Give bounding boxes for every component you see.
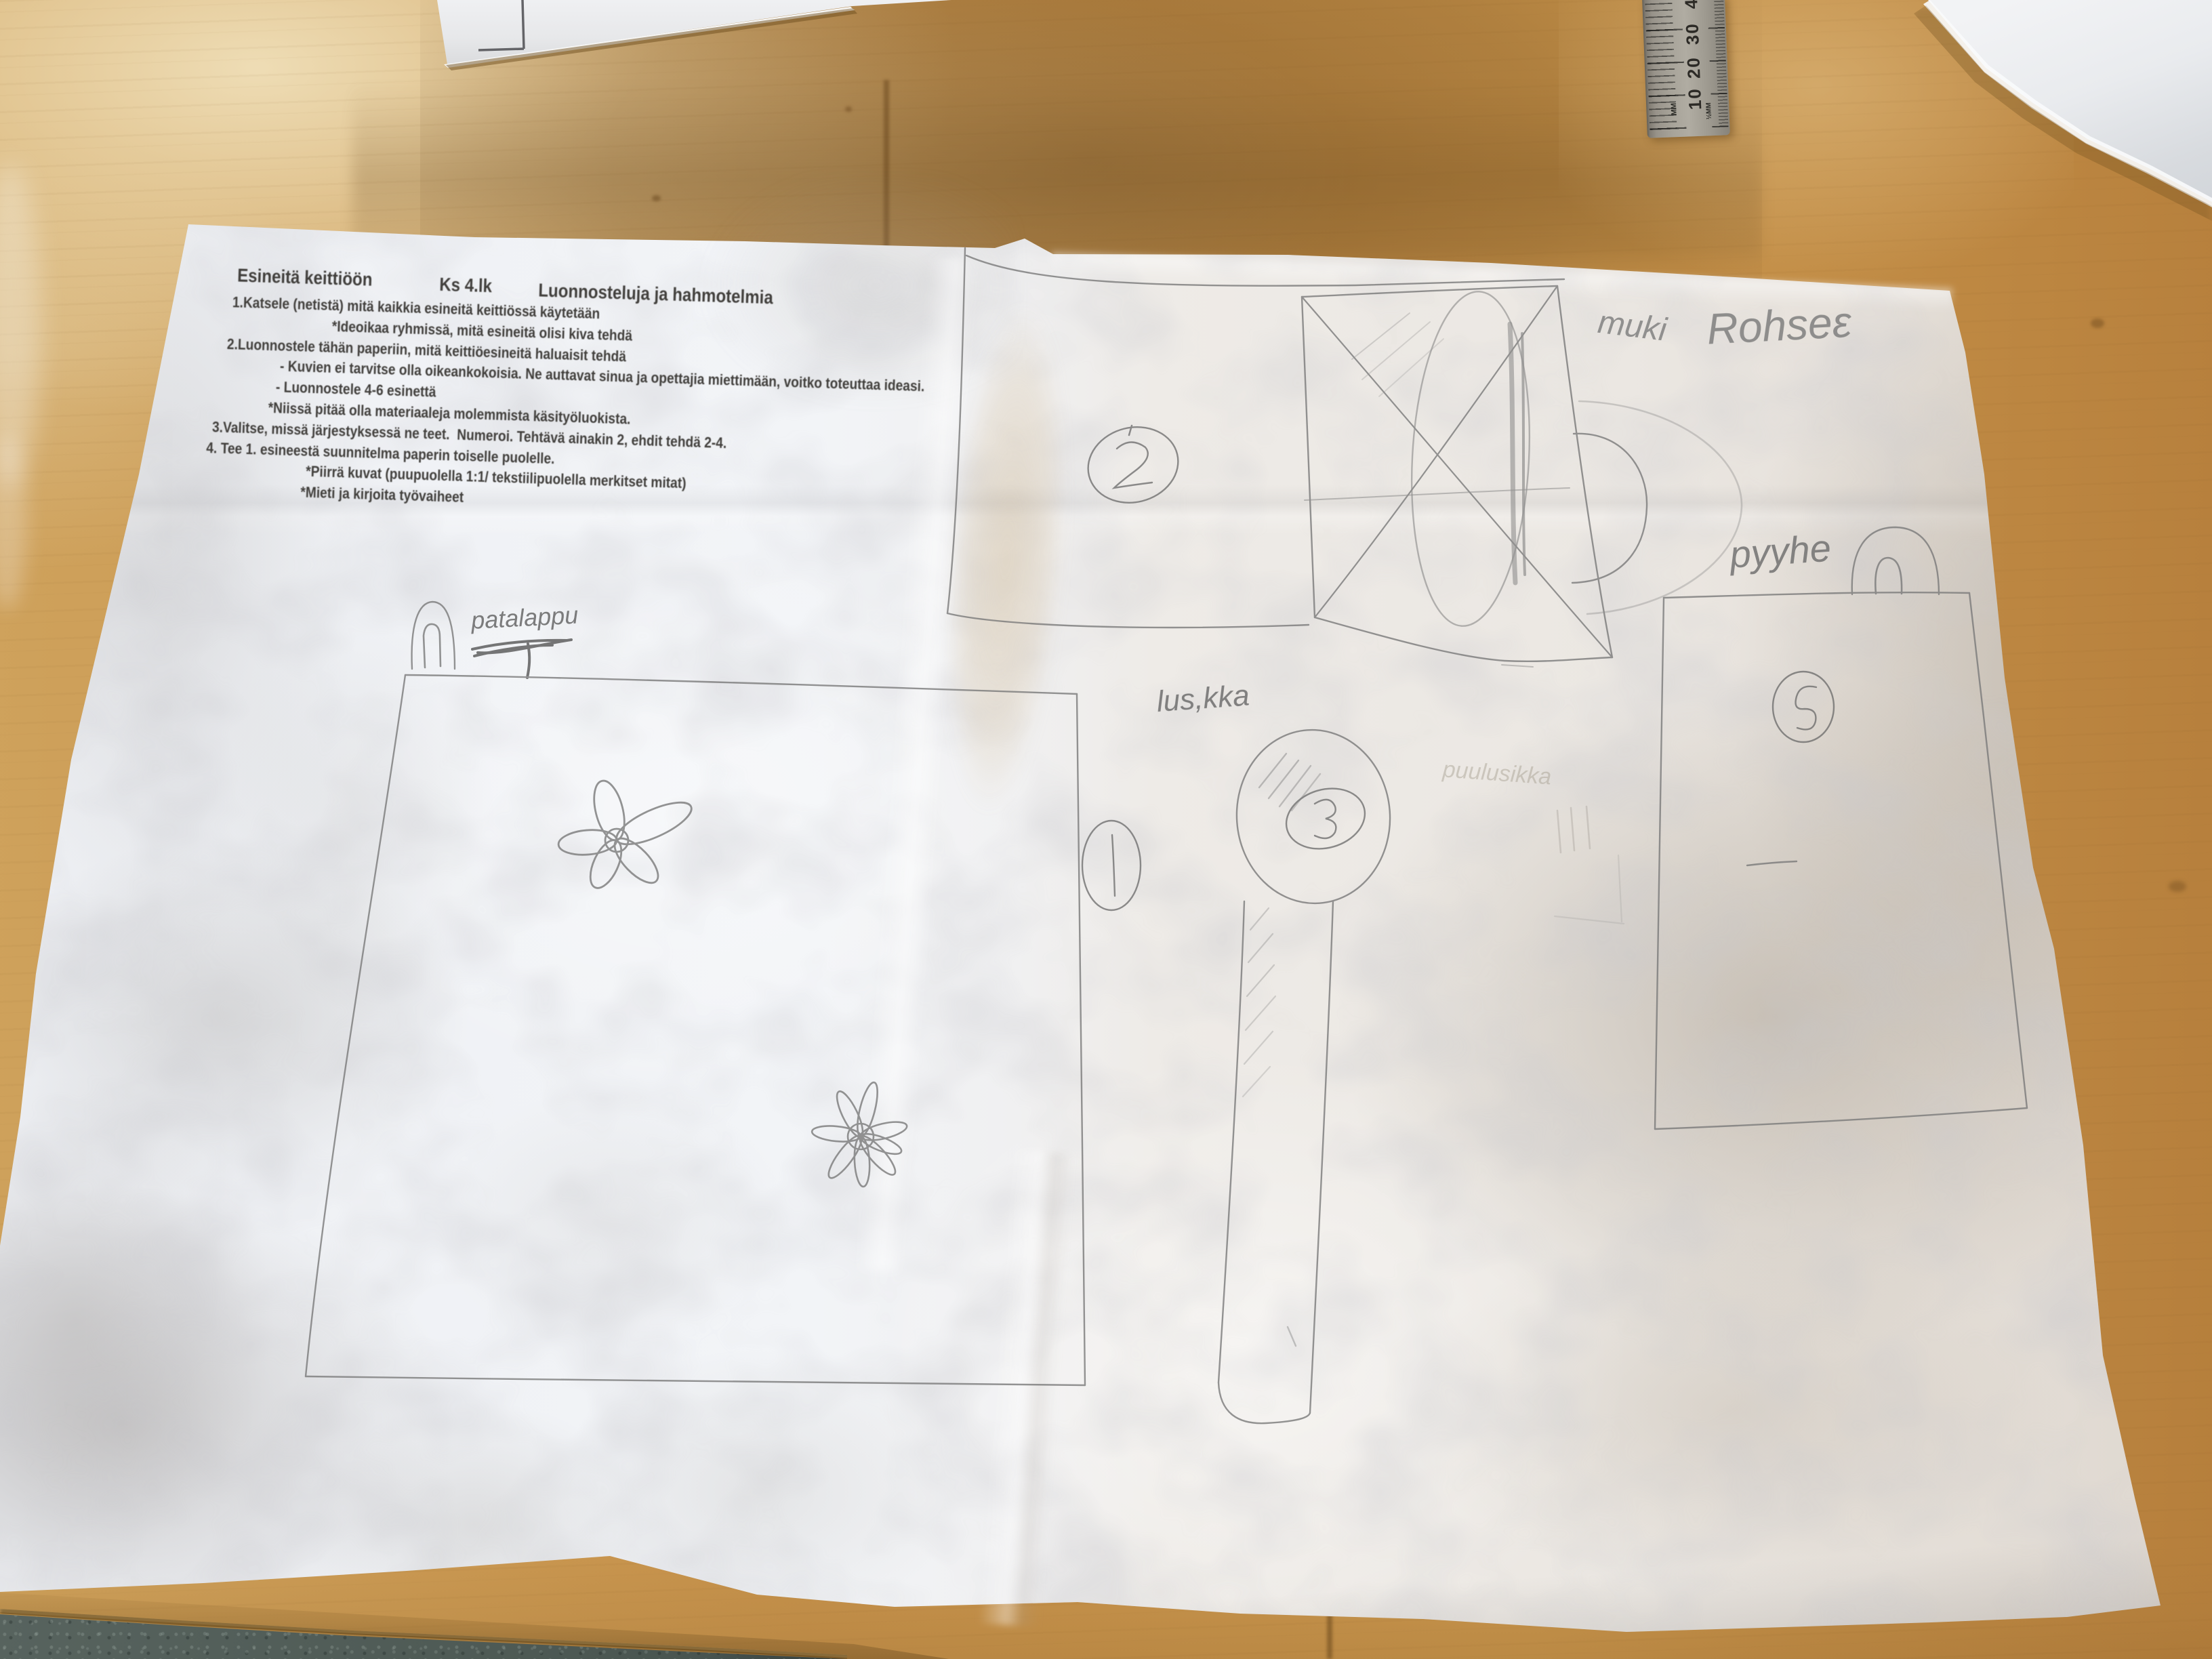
svg-text:muki: muki [1596,304,1669,348]
svg-text:patalappu: patalappu [470,601,579,634]
svg-text:Rohseɛ: Rohseɛ [1706,298,1853,354]
svg-text:pyyhe: pyyhe [1727,527,1832,576]
svg-text:puulusikka: puulusikka [1441,756,1553,790]
svg-text:lus,kka: lus,kka [1155,678,1250,718]
